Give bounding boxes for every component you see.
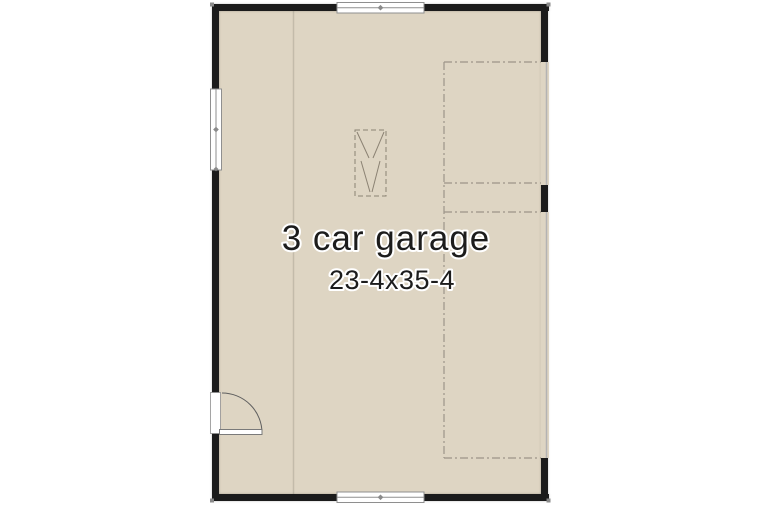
- room-dimensions: 23-4x35-4: [329, 265, 455, 295]
- corner-marker-bottom-left: [210, 499, 214, 503]
- garage-door-openings: [541, 62, 550, 458]
- window-top: [337, 3, 424, 14]
- window-left: [211, 89, 222, 171]
- door-leaf: [220, 430, 263, 435]
- double-garage-door-opening: [541, 212, 550, 458]
- floor-plan: 3 car garage 23-4x35-4: [0, 0, 760, 507]
- floor-plan-canvas: 3 car garage 23-4x35-4: [0, 0, 760, 507]
- corner-marker-top-right: [547, 3, 551, 7]
- room-label: 3 car garage: [282, 219, 491, 258]
- door-opening: [211, 393, 221, 434]
- corner-marker-bottom-right: [547, 499, 551, 503]
- single-garage-door-opening: [541, 62, 550, 185]
- window-bottom: [337, 492, 424, 503]
- corner-marker-top-left: [210, 3, 214, 7]
